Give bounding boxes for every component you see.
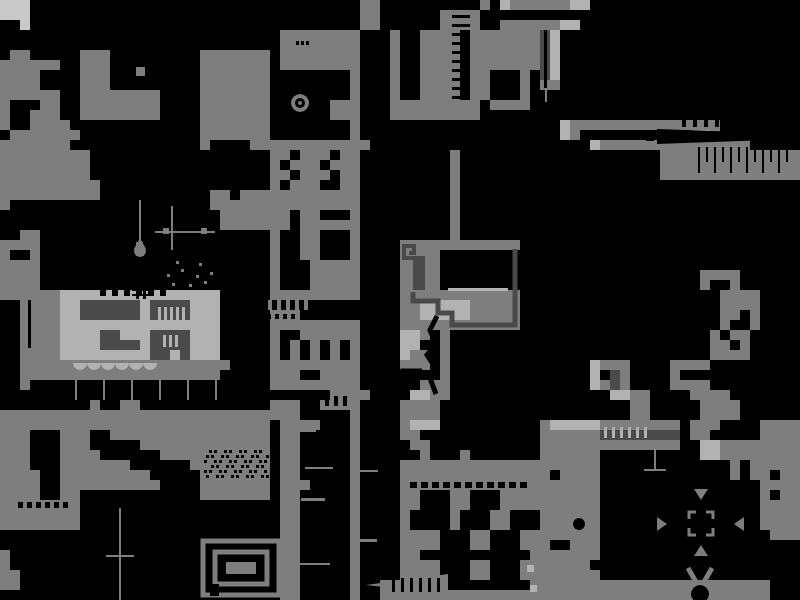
map-screen	[0, 0, 800, 600]
world-map-canvas[interactable]	[0, 0, 800, 600]
